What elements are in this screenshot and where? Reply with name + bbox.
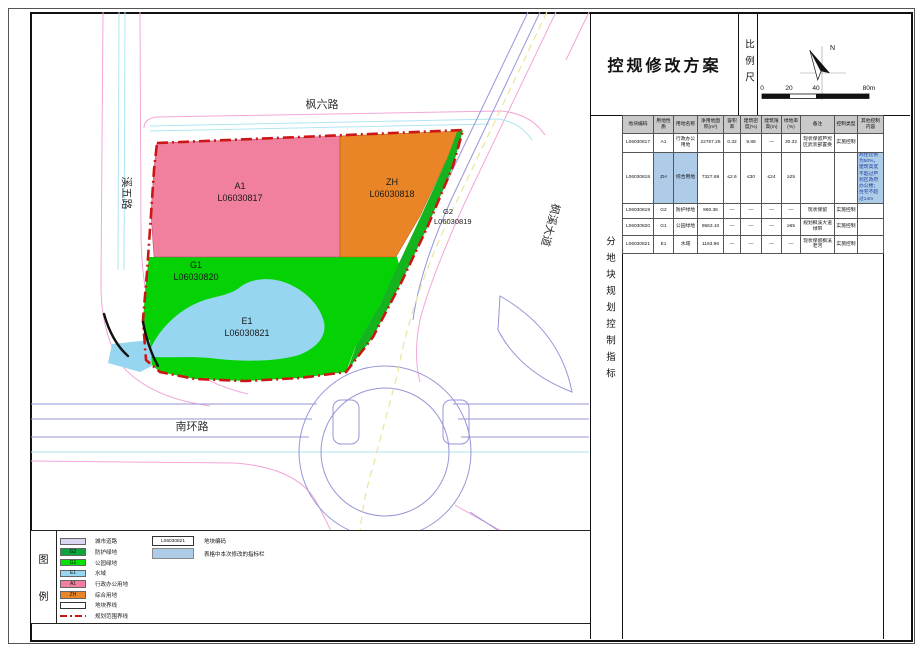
table-cell: — <box>741 203 762 218</box>
table-cell: 实施控制 <box>835 235 858 253</box>
column-header: 其他控制内容 <box>858 116 884 134</box>
table-cell: G2 <box>654 203 674 218</box>
legend-item: 地块界线 <box>60 600 128 611</box>
table-cell: L06030819 <box>623 203 654 218</box>
column-header: 用地名称 <box>674 116 698 134</box>
table-cell: 水域 <box>674 235 698 253</box>
table-cell: — <box>782 203 801 218</box>
table-row: L06030820G1公园绿地9563.10———≥65规划枫溪大道绿带实施控制 <box>623 218 884 235</box>
scale-tick: 80m <box>863 85 876 92</box>
parcel-zh-code-label: ZH <box>386 177 398 187</box>
drawing-sheet: A1 L06030817 ZH L06030818 G2 L06030819 G… <box>0 0 922 651</box>
parcel-e1-id-label: L06030821 <box>224 328 269 338</box>
table-cell: ≤30 <box>741 153 762 204</box>
legend-highlight-label: 表格中本次修改的指标栏 <box>204 550 265 558</box>
road-label-fengxi-avenue: 枫溪大道 <box>538 202 563 248</box>
road-island <box>333 400 359 444</box>
parcel-g1-id-label: L06030820 <box>173 272 218 282</box>
table-cell: L06030818 <box>623 153 654 204</box>
table-cell: 现状保留枫溪老河 <box>801 235 835 253</box>
legend-item: G2防护绿地 <box>60 547 128 558</box>
legend-items: 城市道路G2防护绿地G1公园绿地E1水域A1行政办公用地ZH综合用地地块界线规划… <box>60 536 128 622</box>
table-cell: 0.32 <box>724 134 741 153</box>
table-cell: 9563.10 <box>698 218 724 235</box>
road-label-fengliu: 枫六路 <box>306 97 339 111</box>
legend-item-label: 地块界线 <box>95 601 117 609</box>
table-cell: 防护绿地 <box>674 203 698 218</box>
legend-item-label: 公园绿地 <box>95 559 117 567</box>
legend-highlight-swatch <box>152 548 194 559</box>
scale-bar-ticks: 0 20 40 80m <box>760 85 875 92</box>
table-cell: 综合用地 <box>674 153 698 204</box>
parcel-a1-id-label: L06030817 <box>217 193 262 203</box>
legend-title: 图 例 <box>31 531 57 623</box>
table-cell: G1 <box>654 218 674 235</box>
table-row: L06030817A1行政办公用地22767.260.329.88—30.32现… <box>623 134 884 153</box>
column-header: 地块编码 <box>623 116 654 134</box>
legend-item: 城市道路 <box>60 536 128 547</box>
table-cell: L06030820 <box>623 218 654 235</box>
north-and-scale: N 0 20 40 80m <box>757 12 910 115</box>
table-cell: — <box>741 235 762 253</box>
legend-item-label: 水域 <box>95 569 106 577</box>
table-cell: — <box>724 218 741 235</box>
table-cell: A1 <box>654 134 674 153</box>
column-header: 建筑密度(%) <box>741 116 762 134</box>
panel-divider <box>590 12 591 639</box>
parcel-e1-code-label: E1 <box>241 316 252 326</box>
table-cell: 960.36 <box>698 203 724 218</box>
legend-swatch: G2 <box>60 548 86 556</box>
table-cell: 现状保留芦淞区武装部置换 <box>801 134 835 153</box>
table-cell: 1163.96 <box>698 235 724 253</box>
table-cell: 实施控制 <box>835 134 858 153</box>
legend-item-label: 城市道路 <box>95 537 117 545</box>
table-row: L06030818ZH综合用地7327.69≤2.6≤30≤24≥25商住比例为… <box>623 153 884 204</box>
table-cell <box>858 218 884 235</box>
parcel-g2-code-label: G2 <box>443 207 453 216</box>
legend-swatch <box>60 602 86 610</box>
table-cell <box>858 203 884 218</box>
legend-parcel-code-label: 地块编码 <box>204 537 226 545</box>
side-caption: 分地块规划控制指标 <box>602 236 616 385</box>
table-cell: L06030821 <box>623 235 654 253</box>
north-arrow <box>804 47 830 80</box>
legend-title-char: 图 <box>39 551 49 566</box>
legend-swatch: G1 <box>60 559 86 567</box>
legend-item-label: 防护绿地 <box>95 548 117 556</box>
table-cell: — <box>762 235 782 253</box>
table-row: L06030821E1水域1163.96————现状保留枫溪老河实施控制 <box>623 235 884 253</box>
parcel-g1-code-label: G1 <box>190 260 202 270</box>
table-cell: ≥25 <box>782 153 801 204</box>
road-label-xiwu: 溪五路 <box>120 177 133 210</box>
table-cell: — <box>724 203 741 218</box>
dash-dot-line <box>60 615 86 618</box>
table-cell: — <box>762 134 782 153</box>
parcel-a1-code-label: A1 <box>234 181 245 191</box>
table-cell: 行政办公用地 <box>674 134 698 153</box>
table-header-row: 地块编码用地性质用地名称净用地面积(m²)容积率建筑密度(%)建筑限高(m)绿地… <box>623 116 884 134</box>
scale-tick: 20 <box>785 85 793 92</box>
legend-item: E1水域 <box>60 568 128 579</box>
table-cell: 规划枫溪大道绿带 <box>801 218 835 235</box>
legend-swatch: ZH <box>60 591 86 599</box>
legend-item: ZH综合用地 <box>60 589 128 600</box>
table-cell: 商住比例为50%，建筑高度不超过芦淞区政府办公楼；住宅不超过14m <box>858 153 884 204</box>
table-cell: — <box>762 203 782 218</box>
table-cell: 7327.69 <box>698 153 724 204</box>
parcel-g2-id-label: L06030819 <box>434 217 472 226</box>
legend-parcel-code-sample: L06030821 <box>152 536 194 546</box>
table-cell: 30.32 <box>782 134 801 153</box>
table-cell: 公园绿地 <box>674 218 698 235</box>
table-cell <box>835 153 858 204</box>
table-cell: ≤2.6 <box>724 153 741 204</box>
table-cell: — <box>762 218 782 235</box>
table-cell: 22767.26 <box>698 134 724 153</box>
legend-item: A1行政办公用地 <box>60 579 128 590</box>
legend-item-label: 行政办公用地 <box>95 580 128 588</box>
legend-swatch <box>60 612 86 620</box>
column-header: 用地性质 <box>654 116 674 134</box>
table-cell: ≤24 <box>762 153 782 204</box>
legend-swatch: E1 <box>60 570 86 578</box>
sheet-title: 控规修改方案 <box>592 13 737 114</box>
table-cell: E1 <box>654 235 674 253</box>
table-cell: — <box>782 235 801 253</box>
north-label: N <box>830 45 835 52</box>
column-header: 容积率 <box>724 116 741 134</box>
legend-item: G1公园绿地 <box>60 557 128 568</box>
scale-tick: 40 <box>812 85 820 92</box>
table-cell: ≥65 <box>782 218 801 235</box>
table-cell: 9.88 <box>741 134 762 153</box>
scale-tick: 0 <box>760 85 764 92</box>
legend-item-label: 综合用地 <box>95 591 117 599</box>
column-header: 净用地面积(m²) <box>698 116 724 134</box>
table-cell: 实施控制 <box>835 203 858 218</box>
table-row: L06030819G2防护绿地960.36————现状保留实施控制 <box>623 203 884 218</box>
road-label-nanhuan: 南环路 <box>176 420 209 433</box>
legend-swatch: A1 <box>60 580 86 588</box>
parcel-zh-id-label: L06030818 <box>369 189 414 199</box>
legend-panel: 图 例 城市道路G2防护绿地G1公园绿地E1水域A1行政办公用地ZH综合用地地块… <box>31 530 590 624</box>
table-cell <box>858 235 884 253</box>
legend-swatch <box>60 538 86 546</box>
legend-title-char: 例 <box>39 588 49 603</box>
column-header: 建筑限高(m) <box>762 116 782 134</box>
table-cell: — <box>724 235 741 253</box>
scale-caption: 比例尺 <box>741 39 755 89</box>
table-cell: ZH <box>654 153 674 204</box>
table-cell: — <box>741 218 762 235</box>
legend-item: 规划范围界线 <box>60 611 128 622</box>
table-cell: 实施控制 <box>835 218 858 235</box>
indicator-table: 地块编码用地性质用地名称净用地面积(m²)容积率建筑密度(%)建筑限高(m)绿地… <box>622 115 884 254</box>
column-header: 绿地率(%) <box>782 116 801 134</box>
table-cell <box>858 134 884 153</box>
table-cell <box>801 153 835 204</box>
column-header: 控制类型 <box>835 116 858 134</box>
scale-bar <box>762 94 869 99</box>
corner-island <box>498 296 572 392</box>
table-cell: L06030817 <box>623 134 654 153</box>
table-cell: 现状保留 <box>801 203 835 218</box>
legend-item-label: 规划范围界线 <box>95 612 128 620</box>
column-header: 备注 <box>801 116 835 134</box>
